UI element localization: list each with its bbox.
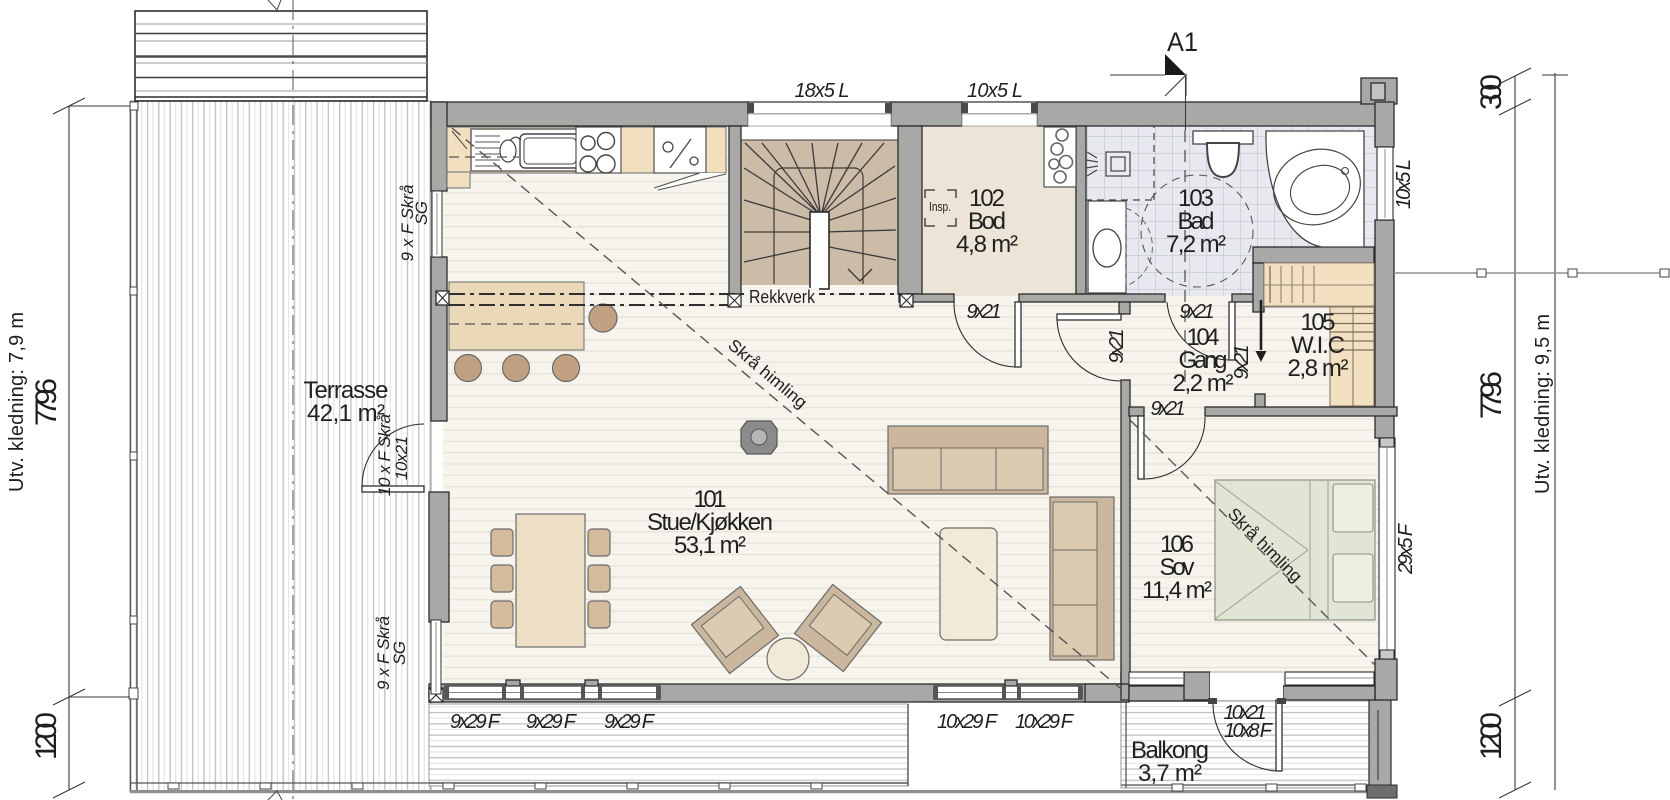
- svg-text:3,7 m²: 3,7 m²: [1138, 760, 1202, 787]
- svg-text:42,1 m²: 42,1 m²: [307, 400, 385, 427]
- svg-text:29x5 F: 29x5 F: [1395, 522, 1417, 575]
- svg-text:9x21: 9x21: [1151, 398, 1186, 420]
- svg-text:SG: SG: [412, 201, 431, 225]
- svg-text:Rekkverk: Rekkverk: [749, 287, 816, 307]
- svg-text:2,8 m²: 2,8 m²: [1288, 355, 1349, 382]
- svg-text:4,8 m²: 4,8 m²: [956, 231, 1018, 258]
- svg-text:9x21: 9x21: [1231, 345, 1253, 380]
- svg-text:Insp.: Insp.: [929, 199, 951, 214]
- svg-text:10x21: 10x21: [392, 436, 411, 480]
- svg-text:10x5 L: 10x5 L: [1393, 159, 1415, 209]
- svg-text:9x21: 9x21: [1106, 329, 1128, 364]
- svg-text:18x5 L: 18x5 L: [795, 80, 850, 102]
- svg-text:9x29 F: 9x29 F: [526, 711, 578, 733]
- svg-text:Utv. kledning: 9,5 m: Utv. kledning: 9,5 m: [1532, 314, 1554, 494]
- svg-text:53,1 m²: 53,1 m²: [674, 532, 746, 559]
- svg-text:11,4 m²: 11,4 m²: [1142, 577, 1212, 604]
- svg-text:1200: 1200: [30, 712, 63, 760]
- svg-text:9x29 F: 9x29 F: [604, 711, 656, 733]
- svg-text:A1: A1: [1167, 27, 1198, 57]
- svg-text:9x21: 9x21: [967, 301, 1002, 323]
- svg-text:7796: 7796: [30, 378, 63, 426]
- svg-text:10x8 F: 10x8 F: [1224, 720, 1274, 742]
- svg-text:10x5 L: 10x5 L: [967, 80, 1023, 102]
- svg-text:300: 300: [1475, 74, 1508, 110]
- svg-text:10x29 F: 10x29 F: [937, 711, 999, 733]
- svg-text:9x29 F: 9x29 F: [450, 711, 502, 733]
- svg-text:10x29 F: 10x29 F: [1015, 711, 1075, 733]
- svg-text:Utv. kledning: 7,9 m: Utv. kledning: 7,9 m: [6, 312, 28, 492]
- svg-text:7796: 7796: [1475, 371, 1508, 419]
- svg-text:2,2 m²: 2,2 m²: [1173, 370, 1234, 397]
- svg-text:1200: 1200: [1475, 712, 1508, 760]
- svg-text:SG: SG: [390, 641, 409, 665]
- svg-text:7,2 m²: 7,2 m²: [1166, 231, 1226, 258]
- svg-text:9x21: 9x21: [1180, 301, 1215, 323]
